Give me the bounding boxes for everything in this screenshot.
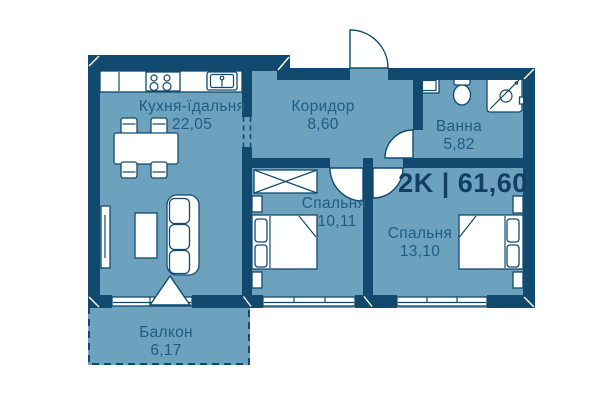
chair [151, 162, 167, 178]
nightstand [513, 272, 523, 288]
bed [459, 215, 523, 269]
room-label-balcony: Балкон [139, 324, 193, 341]
wall [388, 68, 535, 80]
wall [413, 80, 423, 130]
wall [88, 55, 100, 308]
room-label-corridor: Коридор [291, 98, 354, 115]
room-area-kitchen: 22,05 [172, 116, 212, 133]
bed [252, 215, 317, 269]
window [263, 295, 355, 308]
wall [283, 68, 350, 80]
wall [192, 295, 263, 308]
room-area-bedroom1: 10,11 [317, 213, 356, 230]
room-area-bathroom: 5,82 [443, 136, 474, 153]
dining-table [114, 133, 178, 164]
room-area-balcony: 6,17 [150, 342, 181, 359]
pillow [507, 219, 519, 242]
wardrobe [254, 170, 317, 193]
wall [355, 295, 397, 308]
window [397, 295, 487, 308]
wall [363, 158, 373, 295]
wall [242, 147, 252, 295]
pillow [255, 219, 267, 242]
kitchen-sink-icon [207, 72, 237, 90]
entrance-door [350, 30, 388, 68]
room-label-bedroom2: Спальня [388, 225, 452, 242]
chair [121, 162, 137, 178]
kitchen-counter [100, 71, 242, 92]
room-area-bedroom2: 13,10 [400, 243, 440, 260]
wall [88, 55, 290, 71]
pillow [507, 245, 519, 267]
wall [242, 158, 330, 168]
chair [121, 118, 137, 134]
wall [403, 158, 523, 168]
pillow [255, 245, 267, 267]
nightstand [252, 196, 262, 212]
stove-icon [146, 72, 180, 91]
wall [88, 295, 112, 308]
toilet-icon [454, 77, 471, 105]
floor-plan-svg: Кухня-їдальня 22,05 Коридор 8,60 Ванна 5… [0, 0, 609, 408]
room-label-kitchen: Кухня-їдальня [139, 98, 246, 115]
nightstand [513, 196, 523, 213]
chair [151, 118, 167, 134]
coffee-table [135, 213, 157, 258]
sofa [167, 195, 199, 275]
room-label-bathroom: Ванна [436, 118, 482, 135]
room-label-bedroom1: Спальня [302, 195, 366, 212]
shower-icon [487, 77, 525, 112]
floor-plan: Кухня-їдальня 22,05 Коридор 8,60 Ванна 5… [0, 0, 609, 408]
room-area-corridor: 8,60 [307, 116, 338, 133]
nightstand [252, 272, 262, 288]
apartment-summary-label: 2K | 61,60 [398, 168, 528, 198]
